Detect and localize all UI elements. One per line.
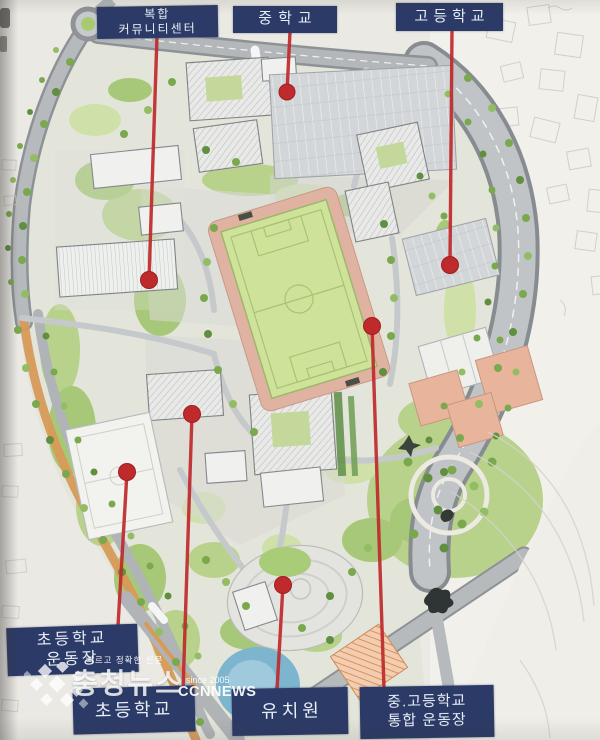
label-line: 고등학교 bbox=[414, 8, 489, 27]
callout-dot-integrated-field bbox=[364, 318, 381, 335]
label-line: 초등학교 bbox=[95, 698, 174, 723]
label-line: 유치원 bbox=[261, 700, 323, 724]
label-line: 중.고등학교 bbox=[387, 693, 466, 713]
label-line: 복합 bbox=[144, 7, 170, 22]
callout-dot-elementary-school bbox=[184, 406, 201, 423]
label-line: 운동장 bbox=[46, 649, 100, 671]
label-line: 중학교 bbox=[258, 10, 317, 29]
label-line: 초등학교 bbox=[36, 629, 108, 651]
callout-dot-middle-school bbox=[279, 84, 295, 100]
site-plan-photo: 복합 커뮤니티센터 중학교 고등학교 초등학교 운동장 초등학교 유치원 중.고… bbox=[0, 0, 600, 740]
callout-dot-community-center bbox=[141, 272, 158, 289]
label-line: 커뮤니티센터 bbox=[118, 21, 196, 37]
callout-dot-elementary-playground bbox=[119, 464, 136, 481]
label-elementary-playground: 초등학교 운동장 bbox=[6, 624, 139, 677]
label-middle-school: 중학교 bbox=[233, 6, 337, 33]
label-integrated-field: 중.고등학교 통합 운동장 bbox=[360, 685, 495, 739]
label-elementary-school: 초등학교 bbox=[72, 685, 195, 734]
label-kindergarten: 유치원 bbox=[232, 687, 349, 736]
callout-dot-kindergarten bbox=[275, 577, 292, 594]
label-high-school: 고등학교 bbox=[396, 3, 503, 31]
callout-dot-high-school bbox=[442, 257, 459, 274]
label-community-center: 복합 커뮤니티센터 bbox=[97, 5, 219, 39]
label-line: 통합 운동장 bbox=[387, 711, 466, 731]
